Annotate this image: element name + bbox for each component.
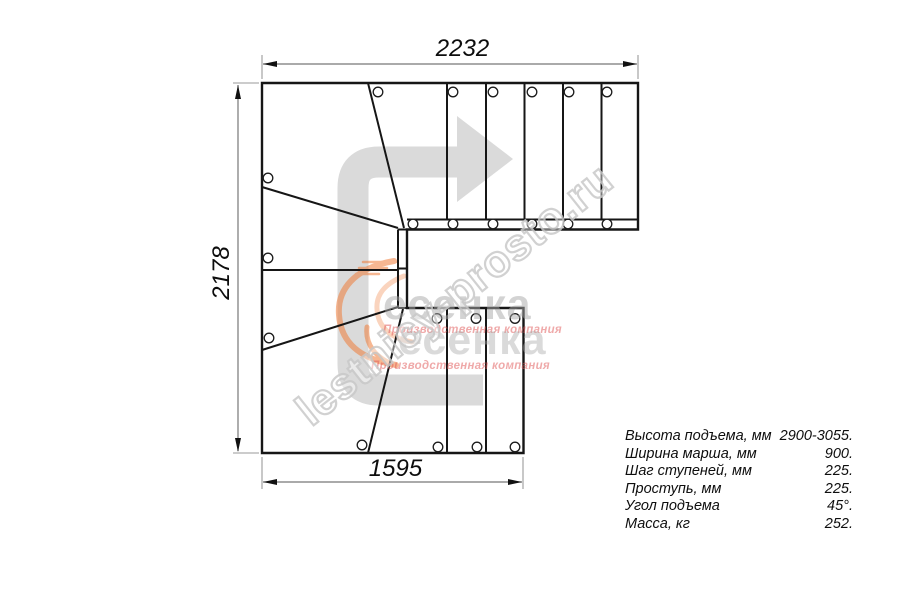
spec-label: Высота подъема, мм [625,428,772,446]
dimension-label-bottom: 1595 [323,455,468,483]
spec-row: Шаг ступеней, мм 225. [625,463,853,481]
spec-label: Ширина марша, мм [625,446,757,464]
spec-value: 45°. [827,498,853,516]
spec-label: Проступь, мм [625,481,721,499]
spec-value: 900. [825,446,853,464]
spec-value: 225. [825,481,853,499]
spec-value: 252. [825,516,853,534]
spec-table: Высота подъема, мм 2900-3055. Ширина мар… [625,428,853,534]
stair-plan-drawing: есенка Производственная компания есенка … [0,0,900,600]
spec-label: Угол подъема [625,498,720,516]
dimension-label-left: 2178 [208,200,234,346]
spec-label: Шаг ступеней, мм [625,463,752,481]
spec-row: Высота подъема, мм 2900-3055. [625,428,853,446]
spec-row: Масса, кг 252. [625,516,853,534]
spec-value: 225. [825,463,853,481]
dimension-label-top: 2232 [390,35,535,63]
spec-row: Проступь, мм 225. [625,481,853,499]
spec-value: 2900-3055. [780,428,853,446]
spec-row: Ширина марша, мм 900. [625,446,853,464]
spec-row: Угол подъема 45°. [625,498,853,516]
spec-label: Масса, кг [625,516,690,534]
